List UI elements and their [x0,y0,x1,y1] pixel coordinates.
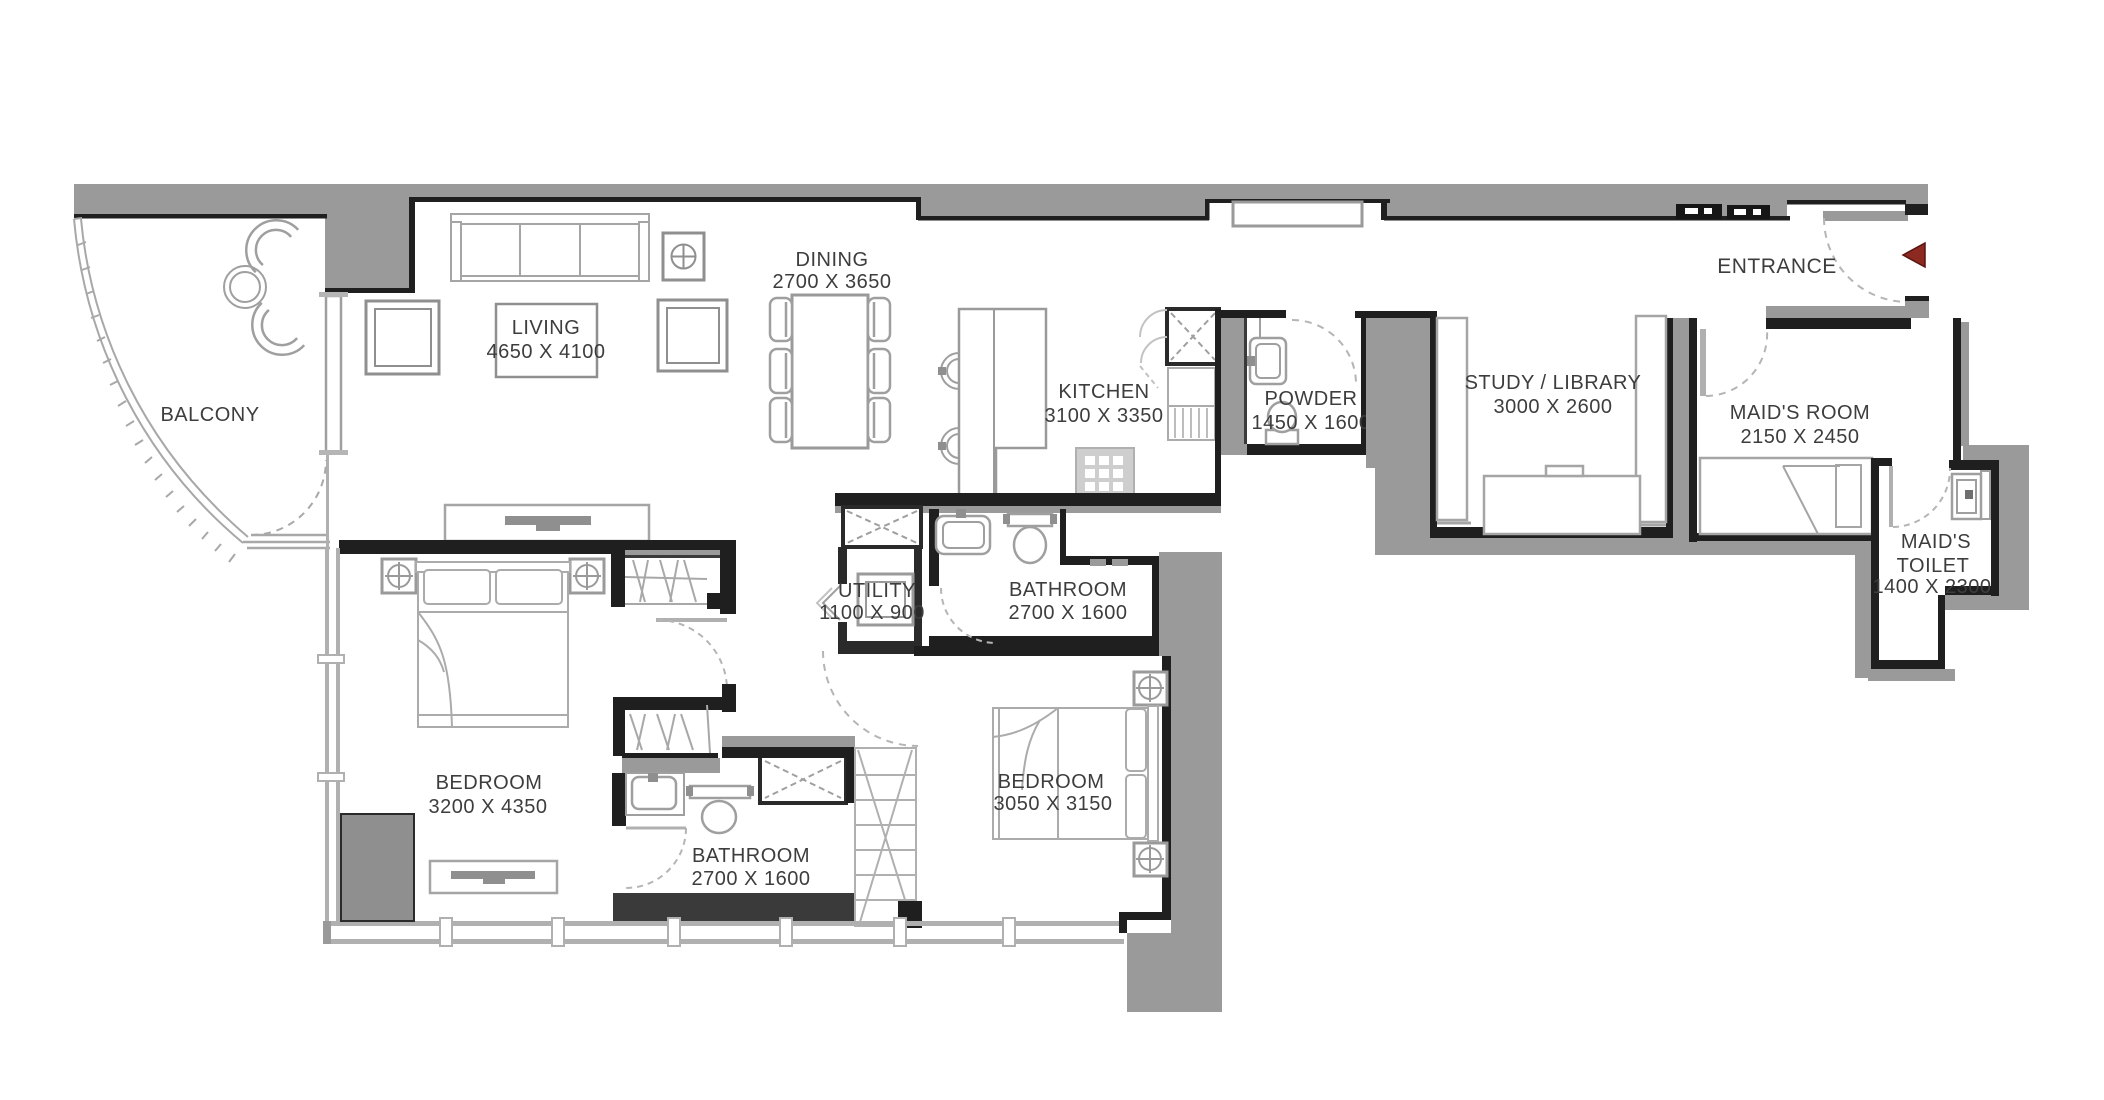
svg-text:1450 X 1600: 1450 X 1600 [1252,412,1371,434]
svg-text:STUDY / LIBRARY: STUDY / LIBRARY [1465,372,1642,394]
svg-text:3050 X 3150: 3050 X 3150 [994,793,1113,815]
svg-text:2700 X 1600: 2700 X 1600 [692,868,811,890]
svg-text:2700 X 1600: 2700 X 1600 [1009,602,1128,624]
svg-text:2700 X 3650: 2700 X 3650 [773,271,892,293]
svg-text:BATHROOM: BATHROOM [692,845,810,867]
svg-text:POWDER: POWDER [1265,388,1358,410]
svg-text:KITCHEN: KITCHEN [1058,381,1149,403]
svg-text:2150 X 2450: 2150 X 2450 [1741,426,1860,448]
svg-text:BEDROOM: BEDROOM [436,772,543,794]
svg-text:MAID'S ROOM: MAID'S ROOM [1730,402,1870,424]
svg-text:UTILITY: UTILITY [838,580,916,602]
svg-text:TOILET: TOILET [1897,555,1970,577]
svg-text:3000 X 2600: 3000 X 2600 [1494,396,1613,418]
svg-text:3100 X 3350: 3100 X 3350 [1045,405,1164,427]
svg-text:1100 X 900: 1100 X 900 [819,602,925,624]
svg-text:4650 X 4100: 4650 X 4100 [487,341,606,363]
svg-text:BALCONY: BALCONY [160,404,259,426]
svg-text:ENTRANCE: ENTRANCE [1717,255,1837,278]
svg-text:BATHROOM: BATHROOM [1009,579,1127,601]
svg-text:LIVING: LIVING [512,317,581,339]
svg-text:BEDROOM: BEDROOM [998,771,1105,793]
svg-text:DINING: DINING [796,249,869,271]
svg-text:1400 X 2300: 1400 X 2300 [1873,576,1992,598]
svg-text:MAID'S: MAID'S [1901,531,1971,553]
svg-text:3200 X 4350: 3200 X 4350 [429,796,548,818]
